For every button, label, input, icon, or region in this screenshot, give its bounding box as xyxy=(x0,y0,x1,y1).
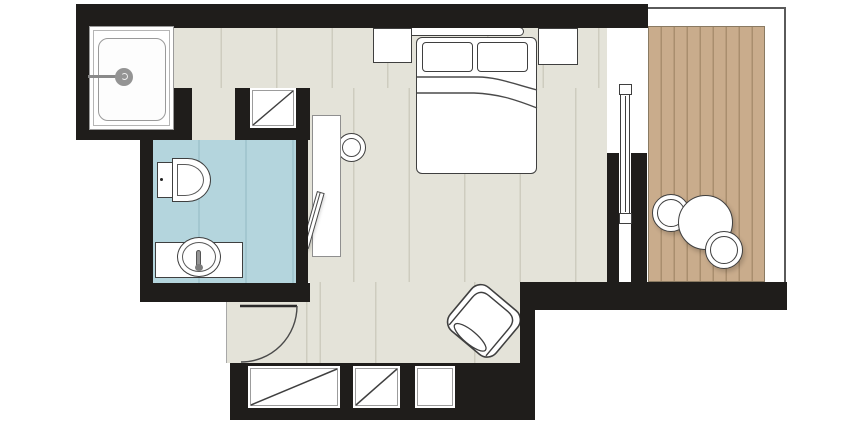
balcony-railing xyxy=(784,7,786,283)
wardrobe-diagonal xyxy=(250,368,338,406)
pillow-icon xyxy=(422,42,473,72)
pillow-icon xyxy=(477,42,528,72)
floor-plan xyxy=(0,0,863,422)
entry-door-jamb xyxy=(226,302,227,363)
desk-chair-inner xyxy=(342,138,361,157)
nightstand xyxy=(373,28,412,63)
wardrobe-diagonal xyxy=(355,368,398,406)
wall-glassdoor-left xyxy=(607,153,619,282)
wall-shower-side xyxy=(174,88,192,140)
glass-door-cap xyxy=(619,213,632,224)
bedroom-floor xyxy=(192,88,235,140)
toilet-flush-dot xyxy=(160,178,163,181)
glass-door-cap xyxy=(619,84,632,95)
wall-bottom-right xyxy=(520,282,787,310)
balcony-chair-inner-ring xyxy=(710,236,738,264)
wall-bathroom-bedroom-divider xyxy=(296,140,308,283)
wall-glassdoor-right xyxy=(631,153,647,282)
desk xyxy=(312,115,341,257)
wall-bathroom-left xyxy=(140,140,153,302)
bed-sheet-fold xyxy=(416,70,541,115)
shower-arm xyxy=(88,75,117,78)
entry-door-swing-icon xyxy=(235,300,305,370)
shower-head-detail xyxy=(121,73,128,80)
tap-head xyxy=(195,264,203,271)
closet-plain-frame xyxy=(417,368,453,406)
balcony-railing xyxy=(648,7,785,9)
wall-top xyxy=(76,4,648,28)
wall-shower-left xyxy=(76,4,90,140)
glass-line xyxy=(625,96,626,212)
armchair-icon xyxy=(436,280,531,370)
bed-headboard xyxy=(402,27,524,36)
wardrobe-diagonal xyxy=(252,90,294,126)
nightstand xyxy=(538,28,578,65)
